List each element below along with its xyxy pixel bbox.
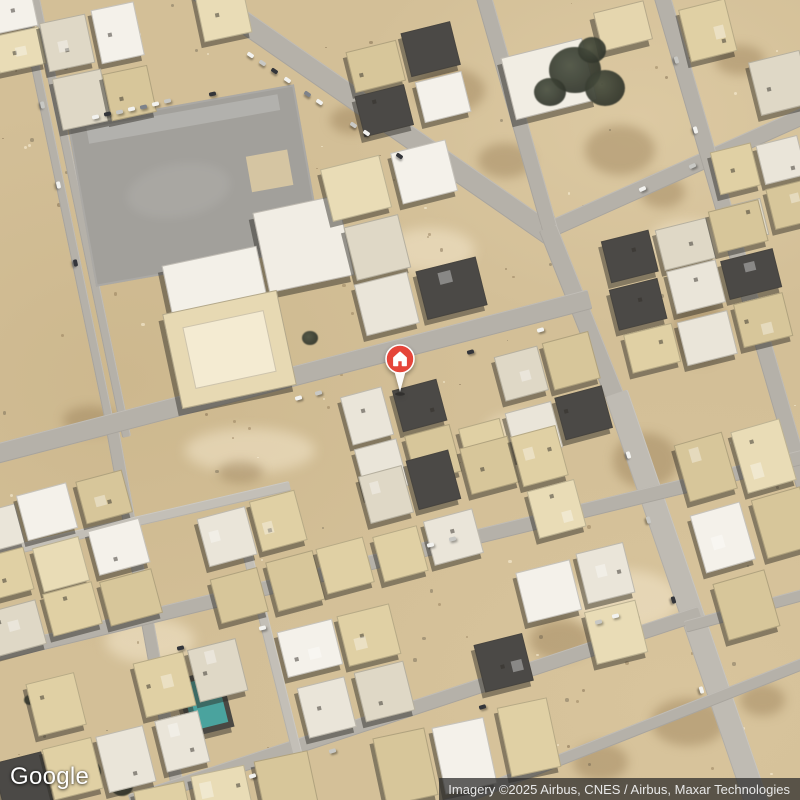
car (315, 98, 323, 105)
car-layer (0, 0, 800, 800)
car (208, 91, 216, 96)
car (478, 704, 486, 710)
car (103, 111, 111, 116)
car (349, 121, 357, 128)
car (55, 181, 60, 189)
car (163, 98, 171, 103)
car (645, 516, 651, 524)
car (91, 114, 99, 119)
car (673, 56, 679, 64)
car (395, 152, 403, 159)
car (283, 76, 291, 83)
car (115, 109, 123, 114)
car (294, 395, 302, 401)
car (638, 186, 646, 193)
car (328, 748, 336, 754)
car (246, 51, 254, 58)
car (698, 686, 704, 694)
car (426, 542, 434, 548)
car (127, 106, 135, 111)
imagery-attribution: Imagery ©2025 Airbus, CNES / Airbus, Max… (439, 778, 800, 800)
car (39, 101, 44, 109)
car (611, 613, 619, 619)
car (303, 90, 311, 97)
car (670, 596, 676, 604)
car (536, 327, 544, 333)
car (258, 625, 266, 631)
pin-ground-shadow (395, 392, 405, 396)
car (692, 126, 698, 134)
car (139, 104, 147, 109)
car (594, 619, 602, 625)
car (466, 349, 474, 355)
car (448, 536, 456, 542)
pin-graphic (382, 343, 418, 399)
google-logo[interactable]: Google (10, 763, 89, 791)
location-pin[interactable] (382, 343, 418, 399)
car (258, 59, 266, 66)
car (314, 390, 322, 396)
car (625, 451, 631, 459)
car (176, 645, 184, 651)
car (270, 67, 278, 74)
map-imagery (0, 0, 800, 800)
car (248, 773, 256, 779)
satellite-map[interactable]: Google Imagery ©2025 Airbus, CNES / Airb… (0, 0, 800, 800)
car (72, 259, 77, 267)
car (151, 101, 159, 106)
car (362, 129, 370, 136)
car (688, 163, 696, 170)
